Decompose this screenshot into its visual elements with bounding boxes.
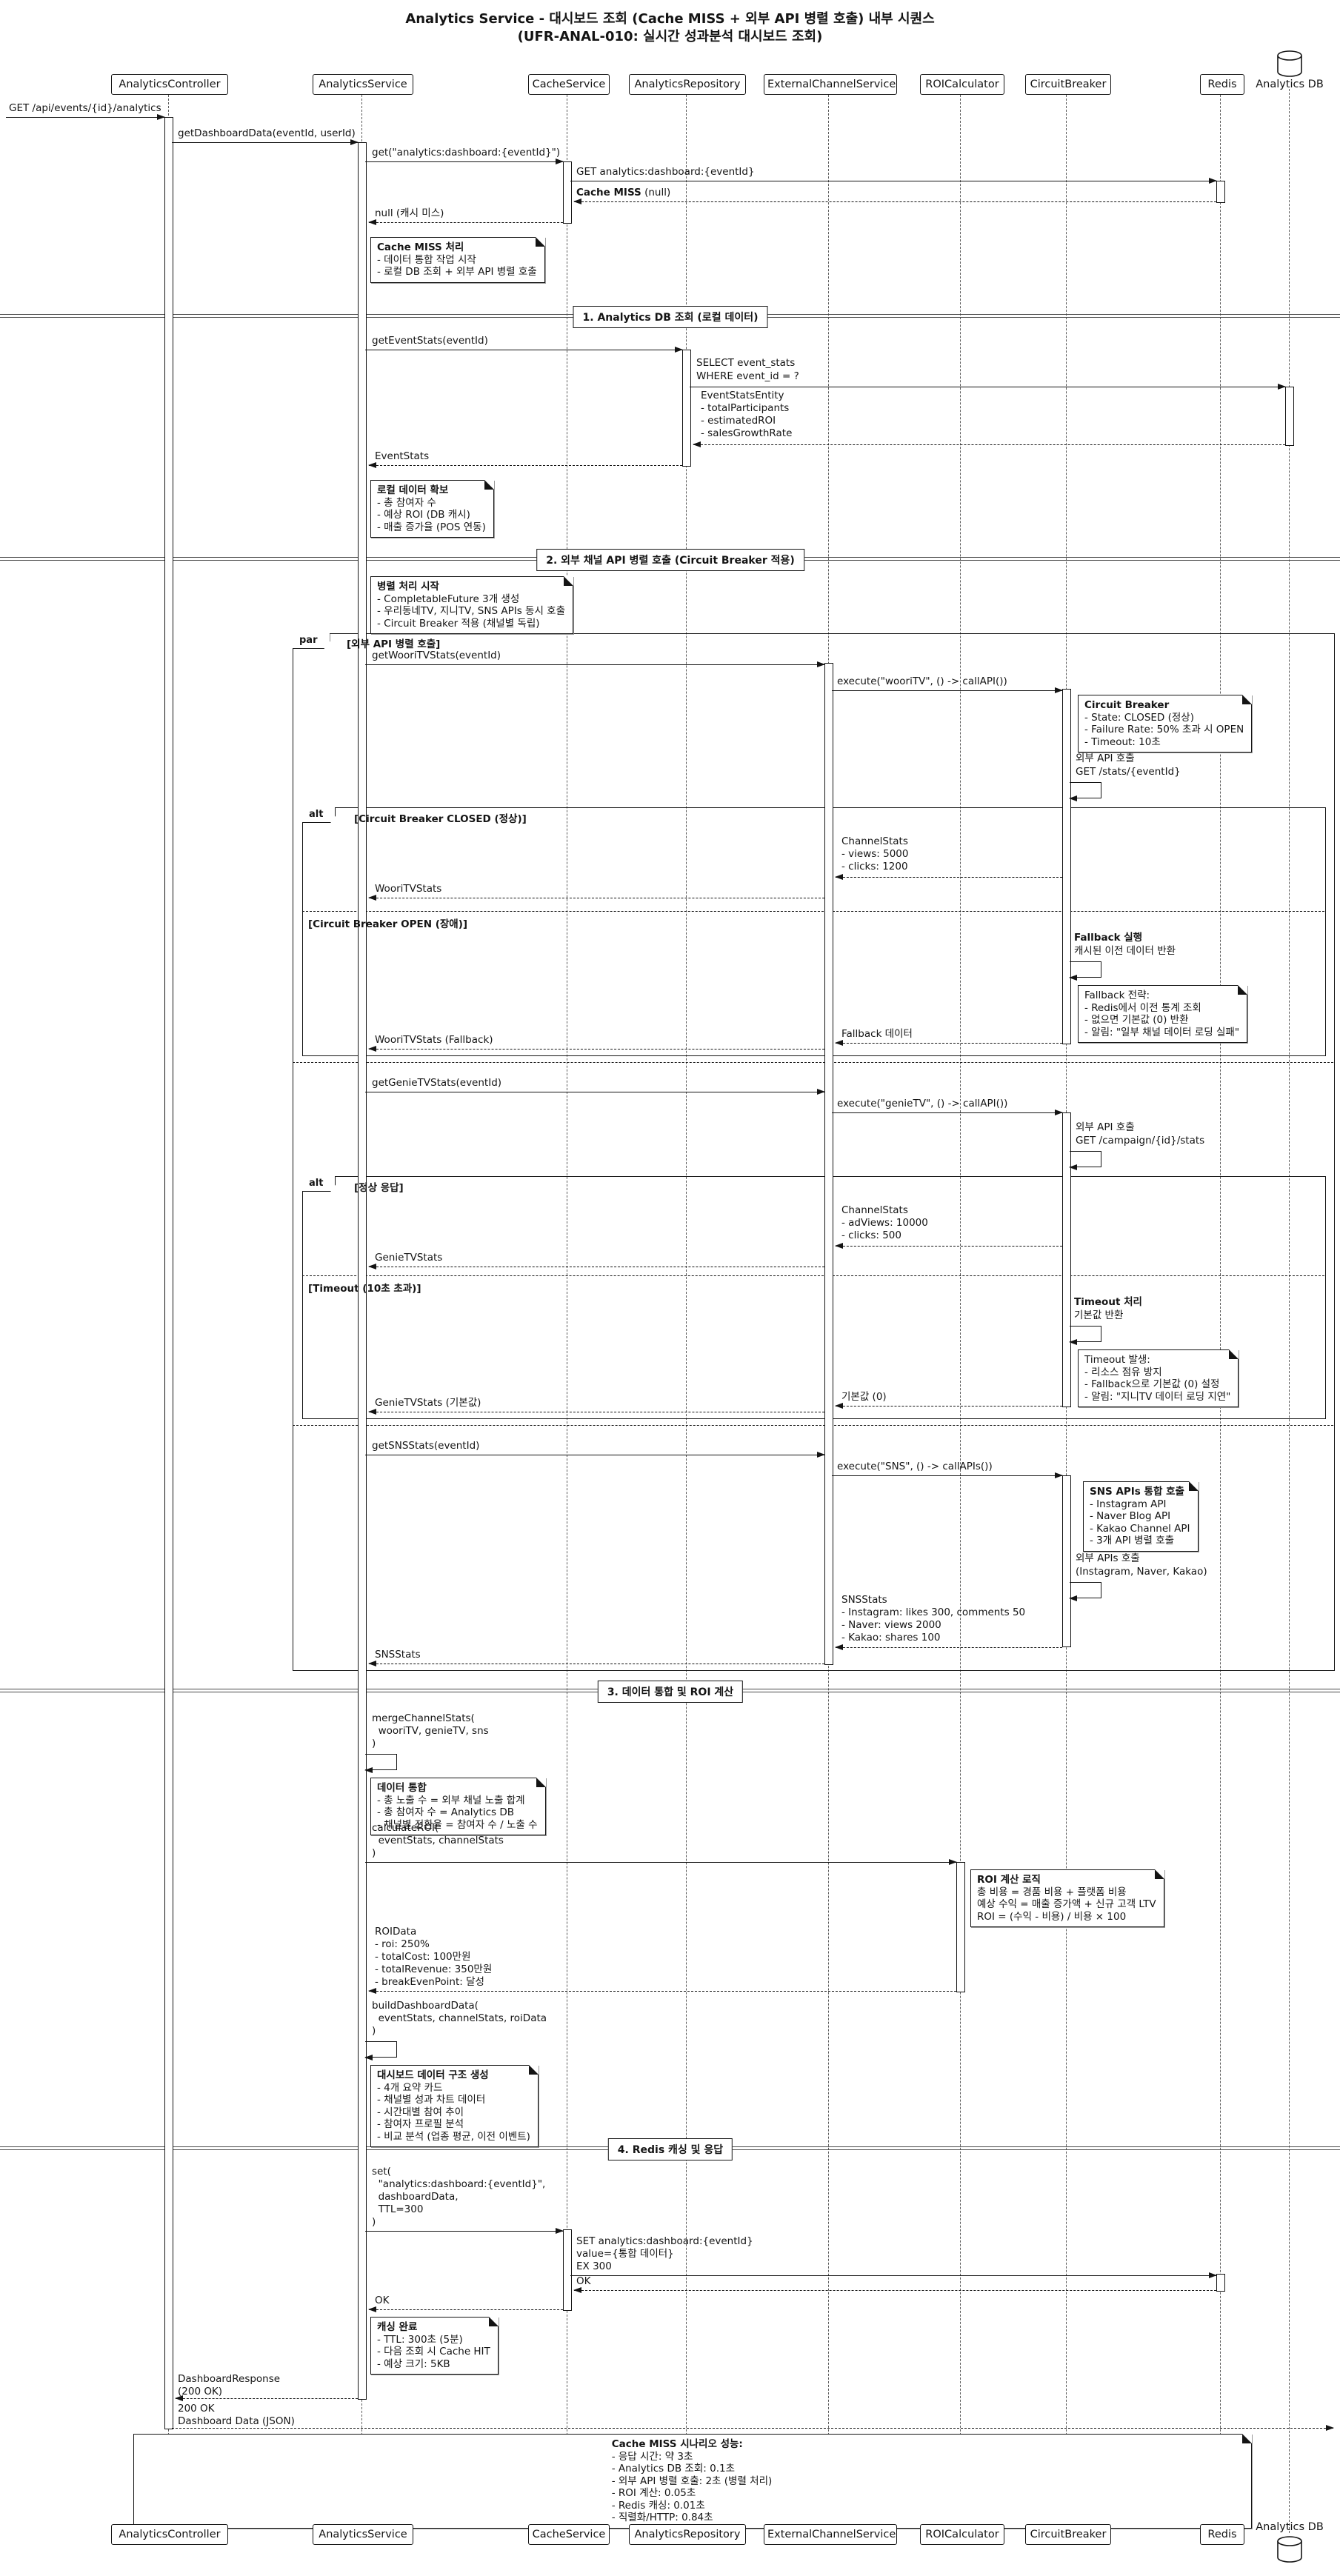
arrow-ok-redis xyxy=(574,2290,1216,2291)
note-sns-apis-line: - Kakao Channel API xyxy=(1090,1523,1190,1535)
self-call-fallback xyxy=(1070,961,1101,978)
self-call-build xyxy=(365,2041,397,2058)
activation-breaker-3 xyxy=(1062,1475,1071,1647)
activation-roi xyxy=(956,1862,965,1992)
msg-default-return: 기본값 (0) xyxy=(841,1391,887,1404)
msg-cache-get: get("analytics:dashboard:{eventId}") xyxy=(372,147,560,159)
divider-3: 3. 데이터 통합 및 ROI 계산 xyxy=(598,1681,743,1703)
note-roi-logic-line: 총 비용 = 경품 비용 + 플랫폼 비용 xyxy=(977,1886,1156,1899)
note-performance-line: - Redis 캐싱: 0.01초 xyxy=(612,2500,773,2512)
arrow-fallback-data xyxy=(836,1043,1062,1044)
msg-dash-response-1: DashboardResponse xyxy=(178,2373,280,2386)
arrow-get-event-stats xyxy=(365,350,682,350)
msg-set-cache-1: set( xyxy=(372,2166,391,2178)
arrow-execute-woori xyxy=(832,690,1062,691)
msg-merge-3: ) xyxy=(372,1738,376,1750)
msg-fallback-exec-1: Fallback 실행 xyxy=(1074,932,1142,944)
msg-calc-roi-1: calculateROI( xyxy=(372,1822,439,1835)
participant-breaker-top: CircuitBreaker xyxy=(1025,74,1111,95)
msg-roi-data-4: - totalRevenue: 350만원 xyxy=(375,1963,492,1976)
msg-sns-api-2: (Instagram, Naver, Kakao) xyxy=(1076,1566,1207,1578)
msg-woori-api-2: GET /stats/{eventId} xyxy=(1076,766,1181,778)
note-fallback-strategy-line: - 없으면 기본값 (0) 반환 xyxy=(1084,1014,1239,1027)
participant-redis-top: Redis xyxy=(1200,74,1244,95)
msg-get-genie: getGenieTVStats(eventId) xyxy=(372,1077,501,1090)
msg-woori-api-1: 외부 API 호출 xyxy=(1076,753,1135,765)
note-sns-apis-line: - Naver Blog API xyxy=(1090,1510,1190,1523)
msg-calc-roi-2: eventStats, channelStats xyxy=(372,1835,504,1847)
note-dashboard-build-title: 대시보드 데이터 구조 생성 xyxy=(377,2069,530,2082)
arrow-genie-return xyxy=(369,1267,824,1267)
msg-set-redis-3: EX 300 xyxy=(576,2260,612,2273)
note-dashboard-build-line: - 4개 요약 카드 xyxy=(377,2082,530,2095)
msg-cache-miss-bold: Cache MISS xyxy=(576,187,641,198)
note-circuit-breaker: Circuit Breaker - State: CLOSED (정상) - F… xyxy=(1078,695,1252,753)
msg-execute-genie: execute("genieTV", () -> callAPI()) xyxy=(837,1098,1007,1110)
alt-genie-condition: [정상 응답] xyxy=(354,1179,404,1194)
participant-redis-bottom: Redis xyxy=(1200,2524,1244,2545)
msg-ok-redis: OK xyxy=(576,2275,590,2288)
activation-repository xyxy=(682,350,691,467)
note-sns-apis-line: - 3개 API 병렬 호출 xyxy=(1090,1535,1190,1547)
arrow-get-genie xyxy=(365,1092,824,1092)
msg-calc-roi-3: ) xyxy=(372,1847,376,1860)
note-timeout: Timeout 발생: - 리소스 점유 방지 - Fallback으로 기본값… xyxy=(1078,1349,1239,1407)
alt-breaker-condition: [Circuit Breaker CLOSED (정상)] xyxy=(354,810,527,825)
arrow-get-sns xyxy=(365,1455,824,1455)
note-circuit-breaker-title: Circuit Breaker xyxy=(1084,699,1244,712)
msg-entity-return-2: - totalParticipants xyxy=(701,402,789,415)
arrow-entity-return xyxy=(693,444,1285,445)
msg-redis-get: GET analytics:dashboard:{eventId} xyxy=(576,166,755,178)
diagram-title: Analytics Service - 대시보드 조회 (Cache MISS … xyxy=(0,10,1340,46)
divider-4: 4. Redis 캐싱 및 응답 xyxy=(608,2138,733,2160)
arrow-get-dashboard xyxy=(172,142,358,143)
participant-repository-top: AnalyticsRepository xyxy=(629,74,746,95)
msg-execute-sns: execute("SNS", () -> callAPIs()) xyxy=(837,1461,993,1473)
database-icon-top xyxy=(1276,50,1304,77)
msg-woori-stats-1: ChannelStats xyxy=(841,835,908,848)
divider-2: 2. 외부 채널 API 병렬 호출 (Circuit Breaker 적용) xyxy=(536,549,804,571)
msg-roi-data-2: - roi: 250% xyxy=(375,1938,430,1951)
note-caching-done-line: - TTL: 300초 (5분) xyxy=(377,2334,490,2346)
msg-final-response-1: 200 OK xyxy=(178,2403,215,2415)
arrow-null-return xyxy=(369,222,563,223)
note-local-data-title: 로컬 데이터 확보 xyxy=(377,484,486,497)
arrow-default-return xyxy=(836,1406,1062,1407)
note-data-merge-line: - 총 노출 수 = 외부 채널 노출 합계 xyxy=(377,1795,538,1807)
par-frame-label: par xyxy=(293,633,330,649)
note-dashboard-build-line: - 참여자 프로필 분석 xyxy=(377,2118,530,2131)
msg-genie-api-2: GET /campaign/{id}/stats xyxy=(1076,1135,1204,1147)
participant-db-bottom: Analytics DB xyxy=(1256,2521,1324,2533)
note-parallel-start-line: - CompletableFuture 3개 생성 xyxy=(377,593,565,606)
title-line1: Analytics Service - 대시보드 조회 (Cache MISS … xyxy=(0,10,1340,28)
note-sns-apis-line: - Instagram API xyxy=(1090,1498,1190,1511)
msg-merge-1: mergeChannelStats( xyxy=(372,1712,475,1725)
note-parallel-start-line: - 우리동네TV, 지니TV, SNS APIs 동시 호출 xyxy=(377,605,565,618)
participant-cache-bottom: CacheService xyxy=(528,2524,610,2545)
alt-breaker-label: alt xyxy=(302,807,336,823)
msg-set-redis-2: value={통합 데이터} xyxy=(576,2248,674,2260)
msg-roi-data-1: ROIData xyxy=(375,1926,416,1938)
arrow-ok-cache xyxy=(369,2309,563,2310)
msg-get-event-stats: getEventStats(eventId) xyxy=(372,335,488,347)
database-icon-bottom xyxy=(1276,2536,1304,2563)
msg-event-stats-return: EventStats xyxy=(375,450,429,463)
msg-get-woori: getWooriTVStats(eventId) xyxy=(372,650,501,662)
note-sns-apis-title: SNS APIs 통합 호출 xyxy=(1090,1486,1190,1498)
activation-db xyxy=(1285,387,1294,446)
title-line2: (UFR-ANAL-010: 실시간 성과분석 대시보드 조회) xyxy=(0,28,1340,46)
note-caching-done-line: - 다음 조회 시 Cache HIT xyxy=(377,2346,490,2358)
arrow-calc-roi xyxy=(365,1862,956,1863)
msg-merge-2: wooriTV, genieTV, sns xyxy=(372,1725,489,1738)
note-circuit-breaker-line: - Timeout: 10초 xyxy=(1084,736,1244,749)
arrow-woori-stats xyxy=(836,877,1062,878)
msg-cache-miss: Cache MISS (null) xyxy=(576,187,670,199)
note-roi-logic-line: 예상 수익 = 매출 증가액 + 신규 고객 LTV xyxy=(977,1898,1156,1911)
activation-external xyxy=(824,663,833,1665)
msg-sns-stats-2: - Instagram: likes 300, comments 50 xyxy=(841,1606,1025,1619)
msg-genie-stats-3: - clicks: 500 xyxy=(841,1229,901,1242)
note-data-merge-title: 데이터 통합 xyxy=(377,1782,538,1795)
par-condition: [외부 API 병렬 호출] xyxy=(347,635,440,650)
note-performance: Cache MISS 시나리오 성능: - 응답 시간: 약 3초 - Anal… xyxy=(133,2434,1252,2529)
activation-breaker-1 xyxy=(1062,689,1071,1044)
participant-cache-top: CacheService xyxy=(528,74,610,95)
note-caching-done-title: 캐싱 완료 xyxy=(377,2321,490,2334)
divider-1: 1. Analytics DB 조회 (로컬 데이터) xyxy=(573,306,768,328)
activation-redis-2 xyxy=(1216,2274,1225,2292)
note-timeout-line: - 리소스 점유 방지 xyxy=(1084,1367,1230,1379)
participant-controller-top: AnalyticsController xyxy=(111,74,228,95)
arrow-execute-sns xyxy=(832,1475,1062,1476)
msg-roi-data-3: - totalCost: 100만원 xyxy=(375,1951,471,1963)
self-call-genie-api xyxy=(1070,1151,1101,1167)
note-local-data-line: - 매출 증가율 (POS 연동) xyxy=(377,521,486,534)
note-local-data: 로컬 데이터 확보 - 총 참여자 수 - 예상 ROI (DB 캐시) - 매… xyxy=(370,480,494,538)
participant-service-bottom: AnalyticsService xyxy=(313,2524,413,2545)
participant-breaker-bottom: CircuitBreaker xyxy=(1025,2524,1111,2545)
participant-db-top: Analytics DB xyxy=(1256,79,1324,90)
note-performance-title: Cache MISS 시나리오 성능: xyxy=(612,2438,773,2451)
self-call-sns-api xyxy=(1070,1582,1101,1598)
msg-set-cache-3: dashboardData, xyxy=(372,2191,459,2203)
note-performance-line: - ROI 계산: 0.05초 xyxy=(612,2487,773,2500)
note-fallback-strategy-line: - Redis에서 이전 통계 조회 xyxy=(1084,1002,1239,1015)
note-timeout-line: - Fallback으로 기본값 (0) 설정 xyxy=(1084,1378,1230,1391)
arrow-sns-stats xyxy=(836,1647,1062,1648)
alt-genie-else-separator xyxy=(302,1275,1324,1276)
msg-genie-api-1: 외부 API 호출 xyxy=(1076,1121,1135,1134)
note-cache-miss-title: Cache MISS 처리 xyxy=(377,241,537,254)
alt-breaker-else-separator xyxy=(302,911,1324,912)
msg-sns-stats-1: SNSStats xyxy=(841,1594,887,1606)
arrow-cache-get xyxy=(365,161,563,162)
arrow-get-woori xyxy=(365,664,824,665)
note-roi-logic-line: ROI = (수익 - 비용) / 비용 × 100 xyxy=(977,1911,1156,1923)
note-cache-miss-line: - 로컬 DB 조회 + 외부 API 병렬 호출 xyxy=(377,266,537,278)
note-caching-done: 캐싱 완료 - TTL: 300초 (5분) - 다음 조회 시 Cache H… xyxy=(370,2317,499,2375)
note-circuit-breaker-line: - Failure Rate: 50% 초과 시 OPEN xyxy=(1084,724,1244,736)
activation-cache-2 xyxy=(563,2229,572,2311)
arrow-genie-default xyxy=(369,1412,824,1412)
note-caching-done-line: - 예상 크기: 5KB xyxy=(377,2358,490,2371)
note-cache-miss-line: - 데이터 통합 작업 시작 xyxy=(377,254,537,267)
note-dashboard-build-line: - 채널별 성과 차트 데이터 xyxy=(377,2094,530,2106)
arrow-final-response xyxy=(172,2428,1333,2429)
note-roi-logic: ROI 계산 로직 총 비용 = 경품 비용 + 플랫폼 비용 예상 수익 = … xyxy=(970,1869,1164,1927)
msg-genie-default: GenieTVStats (기본값) xyxy=(375,1397,481,1409)
msg-fallback-data: Fallback 데이터 xyxy=(841,1028,913,1041)
msg-genie-stats-2: - adViews: 10000 xyxy=(841,1217,928,1229)
sequence-diagram: Analytics Service - 대시보드 조회 (Cache MISS … xyxy=(0,0,1340,2576)
msg-build-1: buildDashboardData( xyxy=(372,2000,479,2012)
msg-sns-return: SNSStats xyxy=(375,1649,421,1661)
msg-entity-return-3: - estimatedROI xyxy=(701,415,776,427)
note-performance-line: - Analytics DB 조회: 0.1초 xyxy=(612,2463,773,2475)
arrow-select-query xyxy=(690,387,1285,387)
activation-cache-1 xyxy=(563,161,572,224)
activation-controller xyxy=(164,117,173,2429)
note-fallback-strategy-line: - 알림: "일부 채널 데이터 로딩 실패" xyxy=(1084,1027,1239,1039)
msg-sns-api-1: 외부 APIs 호출 xyxy=(1076,1552,1140,1565)
arrow-sns-return xyxy=(369,1664,824,1664)
note-parallel-start: 병렬 처리 시작 - CompletableFuture 3개 생성 - 우리동… xyxy=(370,576,573,634)
note-circuit-breaker-line: - State: CLOSED (정상) xyxy=(1084,712,1244,724)
activation-service xyxy=(358,142,367,2400)
activation-redis-1 xyxy=(1216,181,1225,203)
self-call-woori-api xyxy=(1070,782,1101,798)
msg-genie-return: GenieTVStats xyxy=(375,1252,442,1264)
note-performance-line: - 응답 시간: 약 3초 xyxy=(612,2451,773,2463)
participant-controller-bottom: AnalyticsController xyxy=(111,2524,228,2545)
msg-sns-stats-3: - Naver: views 2000 xyxy=(841,1619,941,1632)
arrow-cache-miss xyxy=(574,201,1216,202)
msg-timeout-exec-1: Timeout 처리 xyxy=(1074,1296,1142,1309)
note-dashboard-build-line: - 시간대별 참여 추이 xyxy=(377,2106,530,2119)
msg-dash-response-2: (200 OK) xyxy=(178,2386,222,2398)
msg-genie-stats-1: ChannelStats xyxy=(841,1204,908,1217)
msg-client-request: GET /api/events/{id}/analytics xyxy=(9,102,161,115)
msg-entity-return-4: - salesGrowthRate xyxy=(701,427,792,440)
note-roi-logic-title: ROI 계산 로직 xyxy=(977,1874,1156,1886)
msg-null-return: null (캐시 미스) xyxy=(375,207,444,220)
msg-set-cache-4: TTL=300 xyxy=(372,2203,423,2216)
self-call-merge xyxy=(365,1754,397,1770)
msg-fallback-exec-2: 캐시된 이전 데이터 반환 xyxy=(1074,945,1176,958)
note-dashboard-build-line: - 비교 분석 (업종 평균, 이전 이벤트) xyxy=(377,2131,530,2143)
arrow-client-request xyxy=(6,117,164,118)
msg-woori-stats-2: - views: 5000 xyxy=(841,848,908,861)
msg-woori-return: WooriTVStats xyxy=(375,883,441,895)
note-performance-line: - 직렬화/HTTP: 0.84초 xyxy=(612,2512,773,2524)
msg-get-sns: getSNSStats(eventId) xyxy=(372,1440,479,1452)
arrow-woori-return xyxy=(369,898,824,898)
participant-roi-top: ROICalculator xyxy=(920,74,1004,95)
note-timeout-line: - 알림: "지니TV 데이터 로딩 지연" xyxy=(1084,1391,1230,1404)
self-call-timeout xyxy=(1070,1326,1101,1342)
alt-genie-label: alt xyxy=(302,1176,336,1192)
arrow-event-stats-return xyxy=(369,465,682,466)
msg-cache-miss-rest: (null) xyxy=(641,187,670,198)
par-separator-2 xyxy=(293,1425,1333,1426)
msg-ok-cache: OK xyxy=(375,2295,389,2307)
msg-final-response-2: Dashboard Data (JSON) xyxy=(178,2415,295,2428)
note-local-data-line: - 총 참여자 수 xyxy=(377,497,486,510)
msg-set-redis-1: SET analytics:dashboard:{eventId} xyxy=(576,2235,753,2248)
participant-repository-bottom: AnalyticsRepository xyxy=(629,2524,746,2545)
arrow-genie-stats xyxy=(836,1246,1062,1247)
note-parallel-start-title: 병렬 처리 시작 xyxy=(377,581,565,593)
par-separator-1 xyxy=(293,1062,1333,1063)
participant-external-top: ExternalChannelService xyxy=(764,74,897,95)
note-cache-miss: Cache MISS 처리 - 데이터 통합 작업 시작 - 로컬 DB 조회 … xyxy=(370,237,545,283)
msg-roi-data-5: - breakEvenPoint: 달성 xyxy=(375,1976,484,1989)
msg-build-3: ) xyxy=(372,2025,376,2038)
participant-external-bottom: ExternalChannelService xyxy=(764,2524,897,2545)
msg-woori-stats-3: - clicks: 1200 xyxy=(841,861,908,873)
arrow-set-cache xyxy=(365,2231,563,2232)
msg-execute-woori: execute("wooriTV", () -> callAPI()) xyxy=(837,675,1007,688)
note-performance-line: - 외부 API 병렬 호출: 2초 (병렬 처리) xyxy=(612,2475,773,2488)
participant-service-top: AnalyticsService xyxy=(313,74,413,95)
msg-get-dashboard: getDashboardData(eventId, userId) xyxy=(178,127,356,140)
msg-set-cache-5: ) xyxy=(372,2216,376,2229)
arrow-woori-fallback xyxy=(369,1049,824,1050)
msg-woori-fallback: WooriTVStats (Fallback) xyxy=(375,1034,493,1047)
note-local-data-line: - 예상 ROI (DB 캐시) xyxy=(377,509,486,521)
msg-select-query-1: SELECT event_stats xyxy=(696,357,795,370)
alt-genie-else-condition: [Timeout (10초 초과)] xyxy=(308,1280,421,1295)
note-timeout-title: Timeout 발생: xyxy=(1084,1354,1230,1367)
note-sns-apis: SNS APIs 통합 호출 - Instagram API - Naver B… xyxy=(1083,1481,1199,1552)
msg-sns-stats-4: - Kakao: shares 100 xyxy=(841,1632,941,1644)
note-fallback-strategy: Fallback 전략: - Redis에서 이전 통계 조회 - 없으면 기본… xyxy=(1078,985,1247,1043)
arrow-dash-response xyxy=(176,2398,358,2399)
note-fallback-strategy-title: Fallback 전략: xyxy=(1084,990,1239,1002)
msg-build-2: eventStats, channelStats, roiData xyxy=(372,2012,547,2025)
note-parallel-start-line: - Circuit Breaker 적용 (채널별 독립) xyxy=(377,618,565,630)
msg-timeout-exec-2: 기본값 반환 xyxy=(1074,1309,1123,1322)
arrow-execute-genie xyxy=(832,1112,1062,1113)
arrow-set-redis xyxy=(570,2275,1216,2276)
msg-set-cache-2: "analytics:dashboard:{eventId}", xyxy=(372,2178,545,2191)
alt-breaker-else-condition: [Circuit Breaker OPEN (장애)] xyxy=(308,915,467,930)
arrow-redis-get xyxy=(570,181,1216,181)
note-data-merge-line: - 총 참여자 수 = Analytics DB xyxy=(377,1806,538,1819)
participant-roi-bottom: ROICalculator xyxy=(920,2524,1004,2545)
msg-select-query-2: WHERE event_id = ? xyxy=(696,370,799,383)
note-dashboard-build: 대시보드 데이터 구조 생성 - 4개 요약 카드 - 채널별 성과 차트 데이… xyxy=(370,2065,539,2147)
msg-entity-return-1: EventStatsEntity xyxy=(701,390,784,402)
arrow-roi-data xyxy=(369,1991,956,1992)
